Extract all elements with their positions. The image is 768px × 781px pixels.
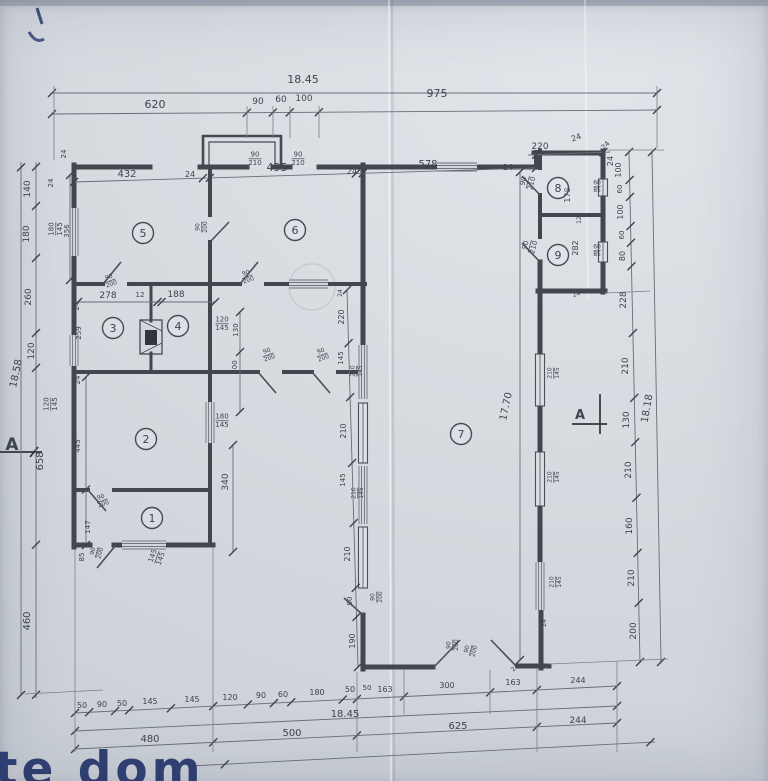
- photo-top-edge: [0, 0, 768, 6]
- dimension-label: 90210: [248, 151, 261, 168]
- dimension-label: 90200: [195, 221, 210, 233]
- window: [536, 452, 545, 506]
- dimension-label: 90200: [314, 346, 330, 364]
- dimension-label: 495: [267, 161, 288, 174]
- room-number: 6: [292, 224, 299, 237]
- svg-text:210: 210: [248, 159, 261, 167]
- dimension-label: 100: [616, 204, 625, 219]
- svg-text:145: 145: [339, 473, 347, 486]
- svg-text:120: 120: [27, 342, 37, 359]
- svg-text:145: 145: [184, 695, 199, 704]
- svg-text:90: 90: [446, 641, 453, 649]
- svg-text:145: 145: [215, 421, 228, 429]
- svg-text:220: 220: [531, 142, 548, 152]
- svg-text:140: 140: [23, 180, 33, 197]
- svg-text:445: 445: [74, 439, 82, 452]
- svg-text:210: 210: [621, 357, 631, 374]
- svg-text:24: 24: [347, 167, 357, 176]
- handwri ting-mark-2: [29, 32, 44, 40]
- hatched-window-band: [122, 540, 166, 550]
- svg-text:24: 24: [185, 170, 195, 179]
- dimension-label: 90: [346, 597, 354, 606]
- dimension-label: 18.45: [331, 709, 360, 720]
- hatched-window-band: [535, 562, 545, 610]
- dimension-label: 147: [84, 520, 92, 533]
- hatched-window-band: [205, 402, 215, 443]
- svg-text:180: 180: [215, 413, 228, 421]
- svg-text:80: 80: [618, 251, 627, 261]
- svg-text:210: 210: [547, 367, 554, 379]
- svg-text:24: 24: [337, 289, 344, 297]
- svg-text:340: 340: [221, 473, 231, 490]
- svg-text:90: 90: [294, 151, 303, 159]
- dimension-label: 210145: [547, 367, 562, 379]
- section-marker-letter: A: [5, 435, 19, 455]
- dimension-label: 24: [347, 167, 357, 176]
- dimension-label: 460: [22, 611, 33, 630]
- room-marker-7: 7: [451, 424, 472, 445]
- svg-text:460: 460: [22, 611, 33, 630]
- svg-text:210: 210: [339, 423, 348, 438]
- svg-text:190: 190: [348, 633, 357, 648]
- svg-text:658: 658: [35, 451, 46, 470]
- svg-text:100: 100: [616, 204, 625, 219]
- dimension-label: 130: [232, 323, 240, 336]
- svg-text:210: 210: [351, 487, 358, 499]
- room-number: 3: [110, 322, 117, 335]
- svg-text:282: 282: [571, 240, 580, 255]
- dimension-label: 244: [570, 676, 585, 685]
- dimension-label: 90210: [291, 151, 304, 168]
- dimension-label: 17.70: [498, 391, 515, 421]
- room-marker-9: 9: [548, 245, 569, 266]
- dimension-label: 90200: [446, 639, 461, 651]
- svg-text:210: 210: [627, 569, 637, 586]
- svg-text:578: 578: [418, 159, 437, 170]
- dimension-label: 120145: [43, 397, 60, 410]
- dimension-label: 12: [136, 291, 145, 299]
- svg-text:228: 228: [619, 291, 629, 308]
- dimension-label: 180145: [215, 413, 228, 430]
- room-number: 2: [143, 433, 150, 446]
- dimension-label: 260: [24, 288, 34, 305]
- svg-text:90: 90: [256, 691, 266, 700]
- dimension-label: 180: [22, 225, 32, 242]
- dimension-line: [347, 290, 358, 667]
- room-marker-6: 6: [285, 220, 306, 241]
- dimension-label: 210145: [350, 365, 365, 377]
- svg-text:260: 260: [24, 288, 34, 305]
- svg-text:147: 147: [84, 520, 92, 533]
- svg-text:300: 300: [439, 681, 454, 690]
- room-marker-1: 1: [142, 508, 163, 529]
- svg-text:90: 90: [251, 151, 260, 159]
- svg-text:278: 278: [99, 291, 116, 301]
- dimension-label: 500: [282, 728, 301, 739]
- room-number: 7: [458, 428, 465, 441]
- svg-text:145: 145: [51, 397, 59, 410]
- dimension-label: 24: [541, 619, 548, 627]
- dimension-label: 130: [622, 411, 632, 428]
- dimension-line: [74, 168, 536, 182]
- svg-text:90: 90: [252, 97, 264, 107]
- svg-text:24: 24: [74, 375, 82, 384]
- dimension-label: 432: [117, 169, 136, 180]
- svg-text:145: 145: [358, 487, 365, 499]
- svg-text:145: 145: [554, 367, 561, 379]
- dimension-label: 90210: [520, 238, 539, 255]
- dimension-label: 80: [618, 251, 627, 261]
- svg-text:50: 50: [117, 699, 127, 708]
- dimension-label: 210: [624, 461, 634, 478]
- dimension-label: 50: [117, 699, 127, 708]
- svg-text:12: 12: [136, 291, 145, 299]
- svg-text:145: 145: [357, 365, 364, 377]
- dimension-label: 85: [78, 553, 86, 562]
- room-marker-4: 4: [168, 316, 189, 337]
- dimension-label: 163: [377, 685, 392, 694]
- svg-text:975: 975: [427, 87, 448, 100]
- svg-text:160: 160: [625, 517, 635, 534]
- paper-fold-crease: [389, 0, 391, 781]
- dimension-line: [190, 742, 655, 766]
- dimension-label: 24: [47, 178, 55, 187]
- dimension-label: 282: [571, 240, 580, 255]
- svg-text:625: 625: [448, 721, 467, 732]
- dimension-label: 18.58: [8, 358, 25, 388]
- paper-artifacts: [0, 0, 768, 781]
- svg-text:60: 60: [616, 185, 624, 194]
- dimension-label: 90200: [260, 346, 276, 364]
- svg-text:17.70: 17.70: [498, 391, 515, 421]
- dimension-label: 145: [337, 351, 345, 364]
- svg-text:200: 200: [231, 360, 239, 373]
- svg-text:210: 210: [547, 471, 554, 483]
- svg-text:210: 210: [549, 576, 556, 588]
- svg-text:210: 210: [350, 365, 357, 377]
- svg-text:244: 244: [569, 716, 586, 726]
- dimension-label: 18.45: [287, 73, 319, 86]
- svg-text:180: 180: [48, 222, 56, 235]
- dimension-label: 90200: [370, 591, 385, 603]
- dimension-label: 90: [256, 691, 266, 700]
- svg-text:120: 120: [222, 693, 237, 702]
- dimension-label: 200: [231, 360, 239, 373]
- dimension-label: 60: [618, 231, 626, 240]
- svg-text:220: 220: [337, 309, 346, 324]
- dimension-label: 300: [439, 681, 454, 690]
- svg-text:18.45: 18.45: [287, 73, 319, 86]
- door-leaf: [312, 372, 330, 393]
- section-marker-letter: A: [575, 408, 585, 423]
- photographed-blueprint-paper: 18.4562090601009754322449524578242202424…: [0, 0, 768, 781]
- svg-text:180: 180: [22, 225, 32, 242]
- dimension-label: 90200: [462, 643, 479, 658]
- walls: [74, 151, 605, 669]
- svg-text:50: 50: [363, 684, 372, 692]
- svg-text:50: 50: [345, 685, 355, 694]
- dimension-label: 220: [531, 142, 548, 152]
- svg-text:145: 145: [554, 471, 561, 483]
- svg-text:120: 120: [43, 397, 51, 410]
- svg-text:24: 24: [503, 163, 513, 172]
- svg-text:356: 356: [63, 224, 71, 238]
- svg-text:200: 200: [453, 639, 460, 651]
- svg-text:180: 180: [309, 688, 324, 697]
- dimension-label: 210145: [351, 487, 366, 499]
- room-number: 1: [149, 512, 156, 525]
- svg-text:210: 210: [291, 159, 304, 167]
- window: [359, 403, 368, 463]
- dimension-label: 445: [74, 439, 82, 452]
- dimension-label: 18.18: [640, 394, 656, 424]
- svg-text:500: 500: [282, 728, 301, 739]
- room-number: 4: [175, 320, 182, 333]
- svg-text:18.45: 18.45: [331, 709, 360, 720]
- dimension-label: 145: [339, 473, 347, 486]
- svg-text:60: 60: [278, 690, 288, 699]
- svg-text:60: 60: [275, 95, 287, 105]
- room-number: 8: [555, 182, 562, 195]
- svg-text:620: 620: [145, 98, 166, 111]
- dimension-label: 340: [221, 473, 231, 490]
- svg-text:120: 120: [215, 316, 228, 324]
- door-leaf: [210, 222, 229, 242]
- dimension-label: 228: [619, 291, 629, 308]
- svg-text:90: 90: [370, 593, 377, 601]
- dimension-label: 210145: [549, 576, 564, 588]
- dimension-label: 210145: [547, 471, 562, 483]
- dimension-label: 60: [616, 185, 624, 194]
- svg-text:163: 163: [505, 678, 520, 687]
- dimension-label: 160: [625, 517, 635, 534]
- dimension-label: 975: [427, 87, 448, 100]
- dimension-label: 620: [145, 98, 166, 111]
- svg-text:85: 85: [593, 251, 601, 258]
- dimension-label: 90: [97, 700, 107, 709]
- svg-text:259: 259: [75, 326, 83, 339]
- svg-text:12: 12: [576, 216, 583, 224]
- svg-text:24: 24: [47, 178, 55, 187]
- chimney-block: [140, 320, 162, 354]
- dimension-label: 60: [278, 690, 288, 699]
- dimension-label: 140: [23, 180, 33, 197]
- dimension-label: 658: [35, 451, 46, 470]
- dimension-label: 120: [27, 342, 37, 359]
- dimension-label: 24: [73, 301, 81, 310]
- dimension-label: 50: [77, 701, 87, 710]
- extension-line: [25, 690, 103, 694]
- room-marker-8: 8: [548, 178, 569, 199]
- room-marker-3: 3: [103, 318, 124, 339]
- svg-text:145: 145: [337, 351, 345, 364]
- dimension-label: 24: [570, 132, 583, 144]
- dimension-label: 210: [621, 357, 631, 374]
- dimension-label: 278: [99, 291, 116, 301]
- dimension-label: 50: [345, 685, 355, 694]
- dimension-label: 24: [337, 289, 344, 297]
- svg-text:210: 210: [343, 546, 352, 561]
- svg-text:100: 100: [295, 94, 312, 104]
- dimension-label: 90210: [518, 174, 537, 191]
- svg-text:24: 24: [73, 301, 81, 310]
- dimension-label: 210: [339, 423, 348, 438]
- room-number: 5: [140, 227, 147, 240]
- dimension-label: 190: [348, 633, 357, 648]
- dimension-label: 100: [614, 162, 623, 177]
- svg-text:130: 130: [622, 411, 632, 428]
- dimension-label: 120145: [215, 316, 228, 333]
- svg-text:85: 85: [78, 553, 86, 562]
- svg-text:130: 130: [232, 323, 240, 336]
- room-marker-2: 2: [136, 429, 157, 450]
- dimension-label: 188: [167, 290, 184, 300]
- dimension-label: 180145: [48, 222, 65, 235]
- dimension-label: 50: [363, 684, 372, 692]
- handwriting-mark-1: [37, 8, 42, 24]
- dimension-line: [52, 110, 657, 114]
- svg-text:145: 145: [142, 697, 157, 706]
- extension-line: [549, 659, 668, 664]
- door-leaf: [258, 372, 276, 393]
- section-cut-lines: [0, 394, 607, 457]
- dimension-label: 6085: [593, 244, 601, 259]
- dimension-label: 24: [74, 375, 82, 384]
- svg-text:145: 145: [556, 576, 563, 588]
- svg-text:50: 50: [77, 701, 87, 710]
- hatched-window-band: [289, 279, 328, 289]
- dimension-label: 145: [184, 695, 199, 704]
- svg-text:85: 85: [593, 187, 601, 194]
- svg-text:145: 145: [215, 324, 228, 332]
- dimension-label: 145: [142, 697, 157, 706]
- dimension-label: 210: [343, 546, 352, 561]
- svg-text:60: 60: [618, 231, 626, 240]
- svg-text:60: 60: [593, 244, 601, 251]
- svg-text:18.18: 18.18: [640, 394, 656, 424]
- svg-text:210: 210: [624, 461, 634, 478]
- svg-text:188: 188: [167, 290, 184, 300]
- svg-text:60: 60: [593, 180, 601, 187]
- dimension-label: 24: [185, 170, 195, 179]
- dimension-label: 90: [252, 97, 264, 107]
- svg-text:200: 200: [629, 622, 639, 639]
- svg-text:18.58: 18.58: [8, 358, 25, 388]
- dimension-label: 145145: [147, 548, 167, 566]
- svg-text:24: 24: [570, 132, 583, 144]
- watermark: te dom: [0, 742, 205, 781]
- svg-text:90: 90: [97, 700, 107, 709]
- svg-text:200: 200: [377, 591, 384, 603]
- door-swings: [88, 176, 540, 668]
- dimension-label: 24: [60, 149, 68, 158]
- dimension-label: 24: [503, 163, 513, 172]
- svg-text:90: 90: [346, 597, 354, 606]
- dimension-label: 120: [222, 693, 237, 702]
- paper-crease-2: [585, 0, 588, 300]
- svg-text:24: 24: [60, 149, 68, 158]
- svg-text:495: 495: [267, 161, 288, 174]
- dimension-label: 163: [505, 678, 520, 687]
- svg-text:90: 90: [195, 223, 202, 231]
- window: [536, 354, 545, 406]
- dimension-label: 356: [63, 224, 71, 238]
- dimension-label: 60: [275, 95, 287, 105]
- svg-text:163: 163: [377, 685, 392, 694]
- dimension-label: 210: [627, 569, 637, 586]
- dimension-label: 12: [576, 216, 583, 224]
- section-markers: AA: [5, 408, 585, 455]
- room-marker-5: 5: [133, 223, 154, 244]
- dimension-label: 625: [448, 721, 467, 732]
- dimension-label: 6085: [593, 180, 601, 195]
- dimension-label: 220: [337, 309, 346, 324]
- svg-text:244: 244: [570, 676, 585, 685]
- room-numbers: 123456789: [103, 178, 569, 529]
- window: [359, 527, 368, 588]
- svg-text:432: 432: [117, 169, 136, 180]
- dimension-label: 259: [75, 326, 83, 339]
- paper-fold-shadow: [392, 0, 394, 781]
- dimension-label: 100: [295, 94, 312, 104]
- svg-text:24: 24: [541, 619, 548, 627]
- svg-text:200: 200: [202, 221, 209, 233]
- dimension-label: 180: [309, 688, 324, 697]
- room-number: 9: [555, 249, 562, 262]
- floor-plan-drawing: 18.4562090601009754322449524578242202424…: [0, 0, 768, 781]
- dimension-label: 244: [569, 716, 586, 726]
- dimension-label: 200: [629, 622, 639, 639]
- dimension-label: 578: [418, 159, 437, 170]
- dimension-label: 90200: [88, 545, 105, 560]
- svg-text:100: 100: [614, 162, 623, 177]
